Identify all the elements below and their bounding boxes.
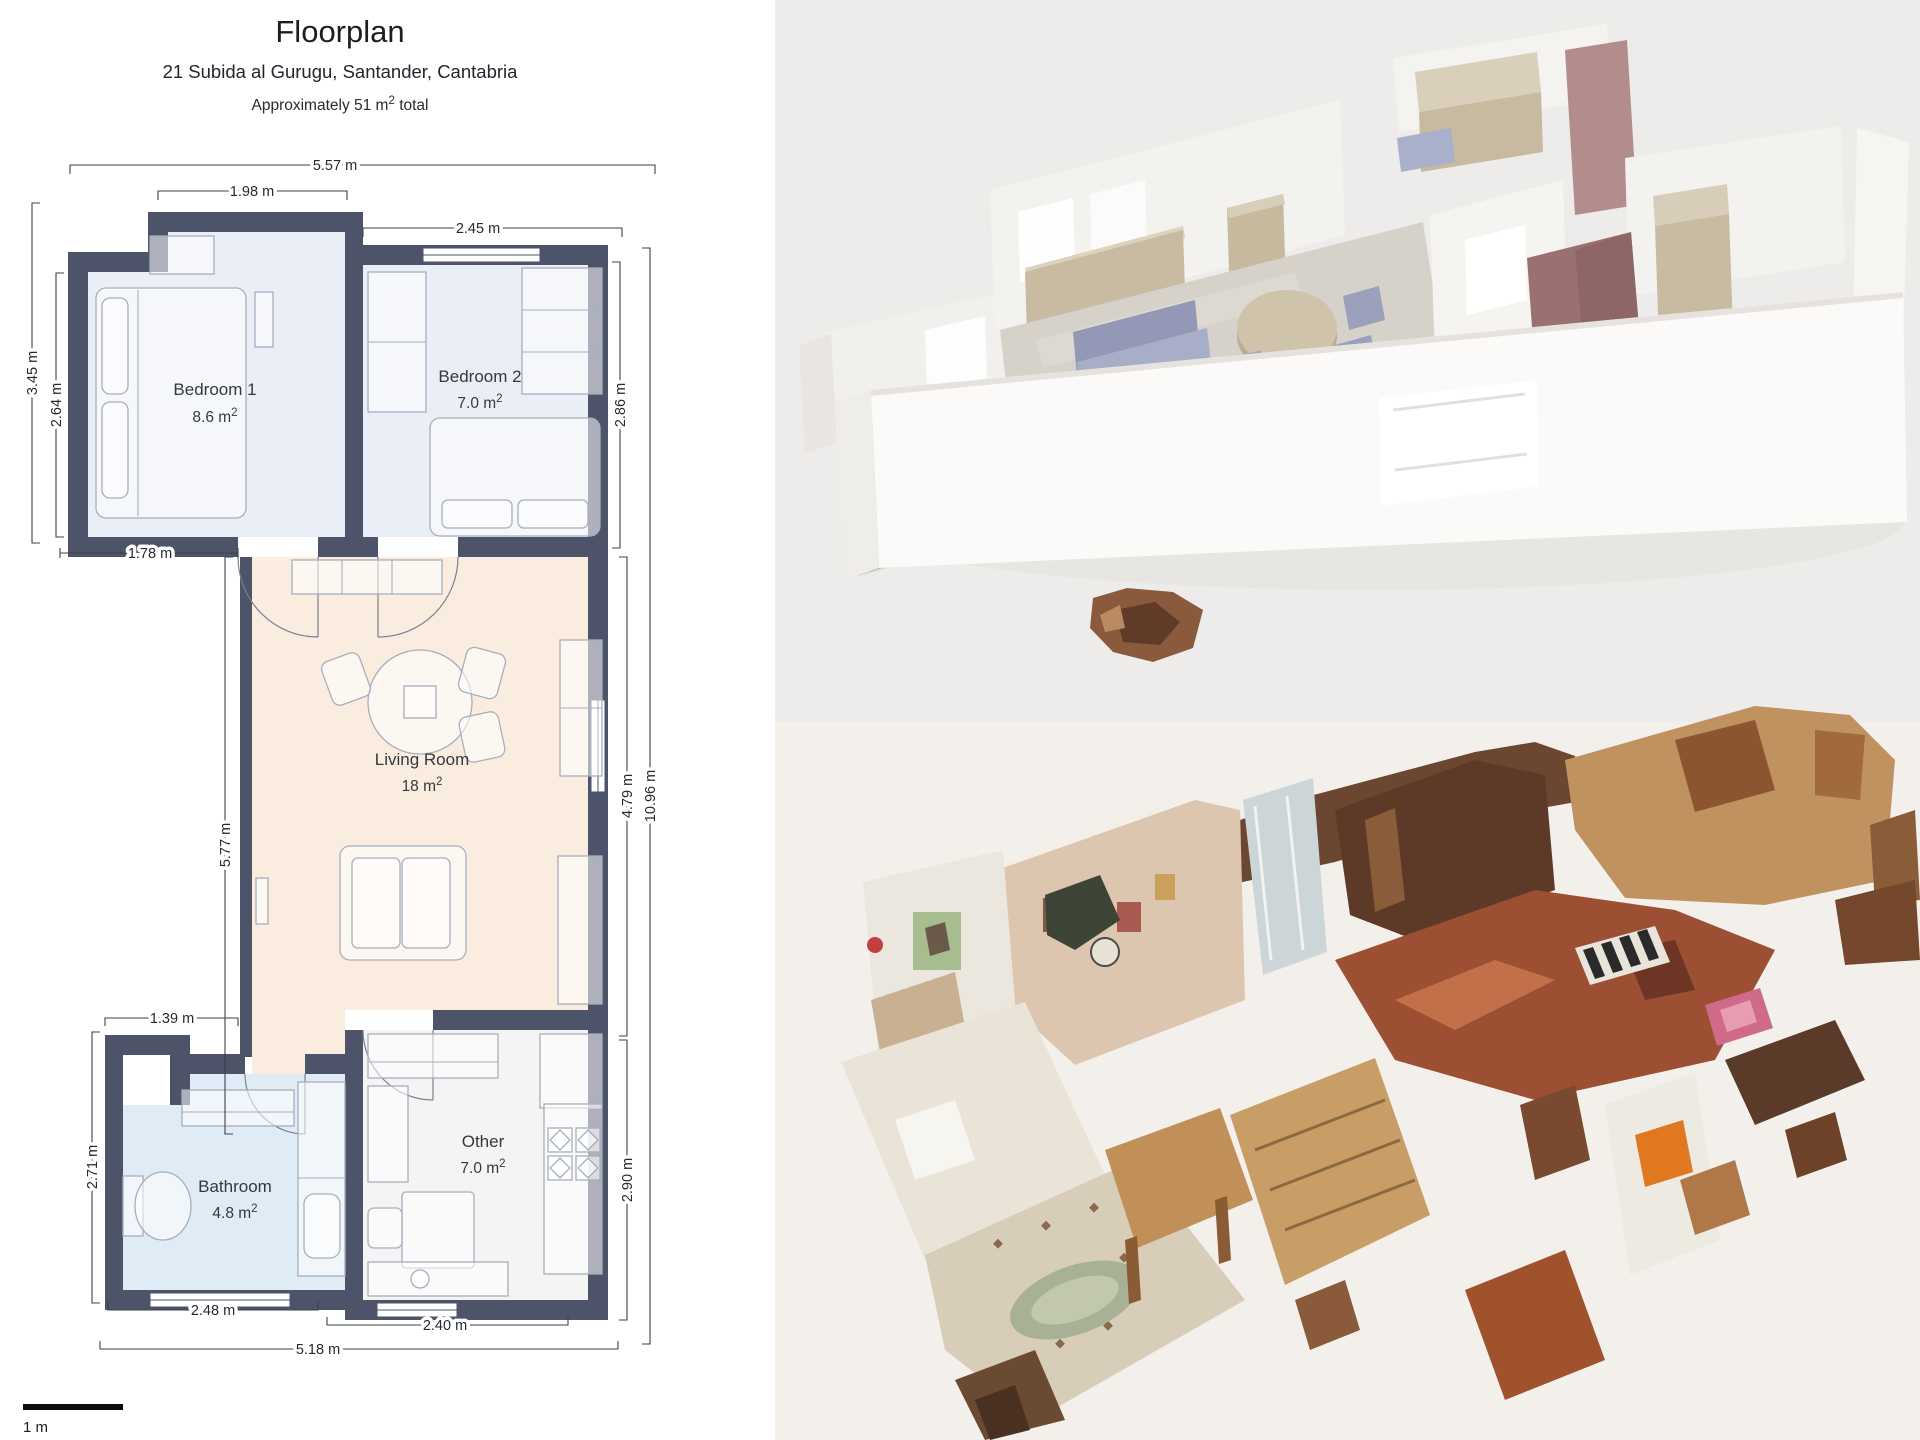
svg-text:2.40 m: 2.40 m bbox=[423, 1318, 467, 1334]
dimension-left-bedroom1: 2.64 m bbox=[49, 273, 65, 537]
svg-text:1.39 m: 1.39 m bbox=[150, 1011, 194, 1027]
floorplan-panel: Floorplan 21 Subida al Gurugu, Santander… bbox=[0, 0, 775, 1440]
page-title: Floorplan bbox=[275, 14, 404, 49]
bedroom2-area: 7.0 m2 bbox=[457, 393, 502, 412]
svg-text:5.77 m: 5.77 m bbox=[218, 823, 234, 867]
dimension-right-bedroom2: 2.86 m bbox=[612, 262, 629, 548]
dimension-right-outer: 10.96 m bbox=[642, 248, 659, 1344]
dimension-right-living: 4.79 m bbox=[619, 557, 636, 1036]
bedroom2-label: Bedroom 2 bbox=[438, 367, 521, 386]
scale-bar-label: 1 m bbox=[23, 1419, 48, 1436]
three-d-svg bbox=[775, 0, 1920, 1440]
living-room-floor bbox=[252, 557, 588, 1074]
svg-text:2.45 m: 2.45 m bbox=[456, 221, 500, 237]
dimension-top-outer: 5.57 m bbox=[70, 158, 655, 174]
bathroom-area: 4.8 m2 bbox=[212, 1203, 257, 1222]
bedroom1-label: Bedroom 1 bbox=[173, 380, 256, 399]
total-area-note: Approximately 51 m2 total bbox=[252, 95, 429, 114]
screenshot-root: Floorplan 21 Subida al Gurugu, Santander… bbox=[0, 0, 1920, 1440]
bathroom-label: Bathroom bbox=[198, 1177, 272, 1196]
svg-text:5.18 m: 5.18 m bbox=[296, 1342, 340, 1358]
svg-text:4.79 m: 4.79 m bbox=[620, 774, 636, 818]
dimension-left-outer: 3.45 m bbox=[25, 203, 41, 543]
floorplan-title-block: Floorplan 21 Subida al Gurugu, Santander… bbox=[163, 14, 519, 114]
dimension-bathroom-top: 1.39 m bbox=[105, 1011, 238, 1027]
scale-bar: 1 m bbox=[23, 1404, 123, 1436]
dimension-right-other: 2.90 m bbox=[619, 1040, 636, 1320]
dimension-hall-left: 5.77 m bbox=[218, 557, 234, 1134]
svg-text:3.45 m: 3.45 m bbox=[25, 351, 41, 395]
other-room-label: Other bbox=[462, 1132, 505, 1151]
svg-text:2.71 m: 2.71 m bbox=[85, 1145, 101, 1189]
svg-text:2.48 m: 2.48 m bbox=[191, 1303, 235, 1319]
svg-text:10.96 m: 10.96 m bbox=[643, 770, 659, 822]
svg-text:2.64 m: 2.64 m bbox=[49, 383, 65, 427]
other-room-area: 7.0 m2 bbox=[460, 1158, 505, 1177]
floorplan-svg: Floorplan 21 Subida al Gurugu, Santander… bbox=[0, 0, 775, 1440]
living-room-label: Living Room bbox=[375, 750, 470, 769]
dimension-top-bedroom2: 2.45 m bbox=[363, 221, 622, 237]
bedroom1-area: 8.6 m2 bbox=[192, 407, 237, 426]
svg-text:2.86 m: 2.86 m bbox=[613, 383, 629, 427]
dimension-top-bedroom1: 1.98 m bbox=[158, 184, 347, 200]
dimension-bathroom-left: 2.71 m bbox=[85, 1032, 101, 1303]
three-d-panels bbox=[775, 0, 1920, 1440]
svg-text:2.90 m: 2.90 m bbox=[620, 1158, 636, 1202]
svg-text:1.78 m: 1.78 m bbox=[128, 546, 172, 562]
svg-text:5.57 m: 5.57 m bbox=[313, 158, 357, 174]
svg-text:1.98 m: 1.98 m bbox=[230, 184, 274, 200]
dimension-bottom-outer: 5.18 m bbox=[100, 1341, 618, 1358]
address-subtitle: 21 Subida al Gurugu, Santander, Cantabri… bbox=[163, 61, 519, 82]
